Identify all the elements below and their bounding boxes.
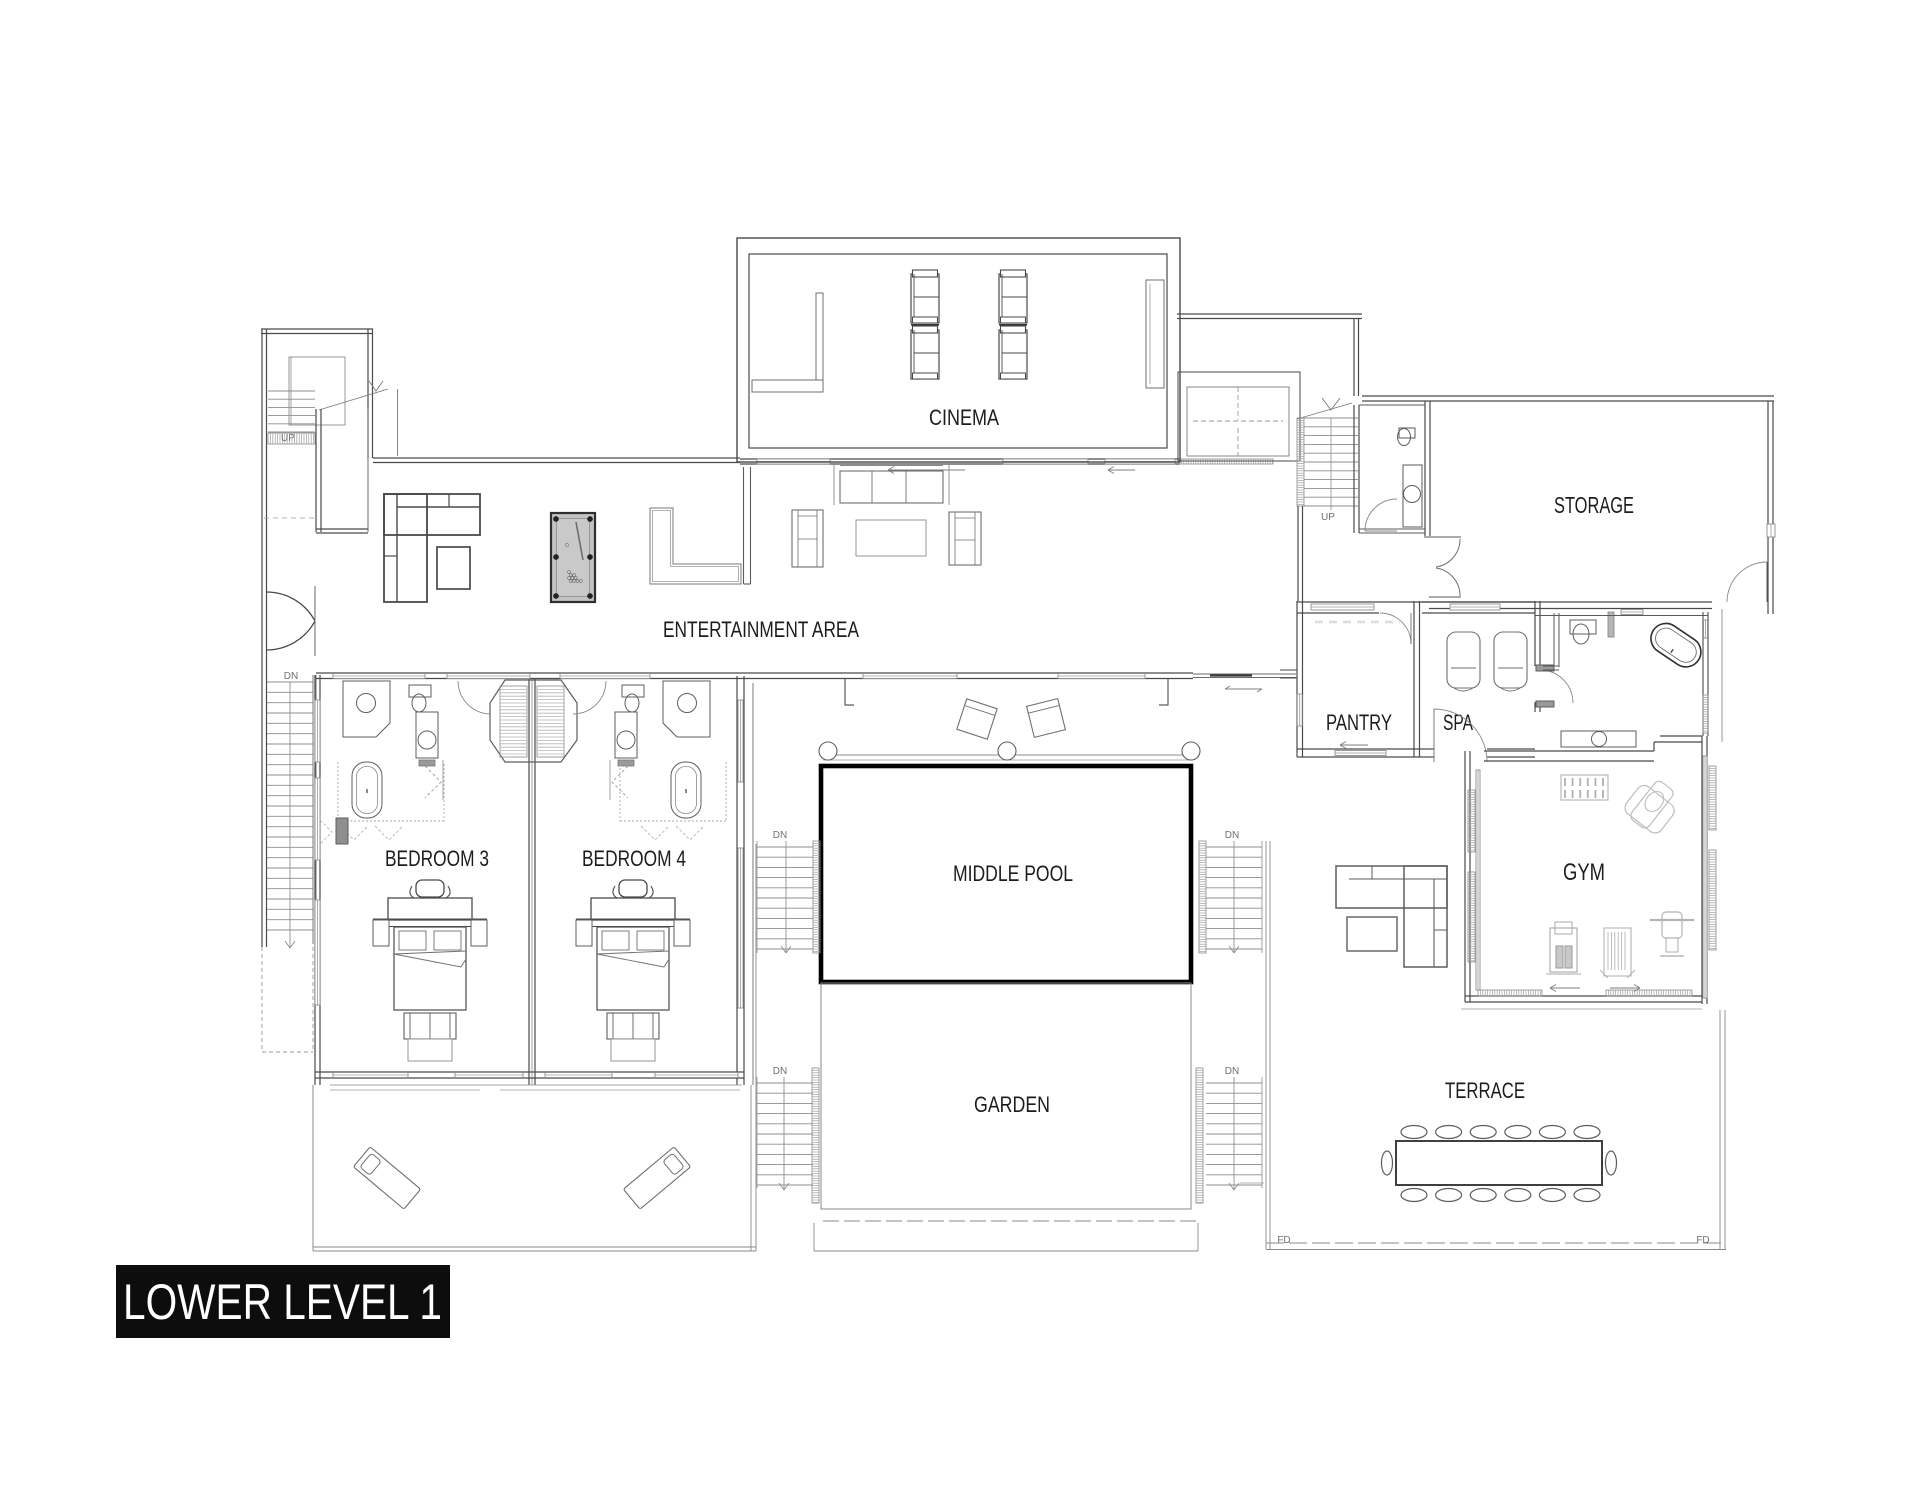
svg-text:CINEMA: CINEMA (929, 405, 999, 430)
svg-text:TERRACE: TERRACE (1445, 1078, 1525, 1103)
svg-text:BEDROOM 4: BEDROOM 4 (582, 846, 686, 871)
svg-text:ENTERTAINMENT AREA: ENTERTAINMENT AREA (663, 617, 859, 642)
svg-text:DN: DN (773, 1066, 787, 1077)
svg-text:PANTRY: PANTRY (1326, 710, 1392, 735)
svg-text:STORAGE: STORAGE (1554, 492, 1634, 518)
svg-text:MIDDLE POOL: MIDDLE POOL (953, 861, 1073, 886)
svg-text:UP: UP (1321, 512, 1335, 523)
svg-text:BEDROOM 3: BEDROOM 3 (385, 846, 489, 871)
svg-text:DN: DN (1225, 1066, 1239, 1077)
svg-text:GARDEN: GARDEN (974, 1092, 1050, 1117)
svg-text:DN: DN (773, 830, 787, 841)
svg-text:FD: FD (1696, 1235, 1709, 1246)
svg-text:DN: DN (284, 671, 298, 682)
svg-text:LOWER LEVEL 1: LOWER LEVEL 1 (123, 1274, 442, 1330)
svg-text:DN: DN (1225, 830, 1239, 841)
svg-text:FD: FD (1277, 1235, 1290, 1246)
svg-text:GYM: GYM (1563, 859, 1605, 886)
svg-text:UP: UP (281, 433, 295, 444)
